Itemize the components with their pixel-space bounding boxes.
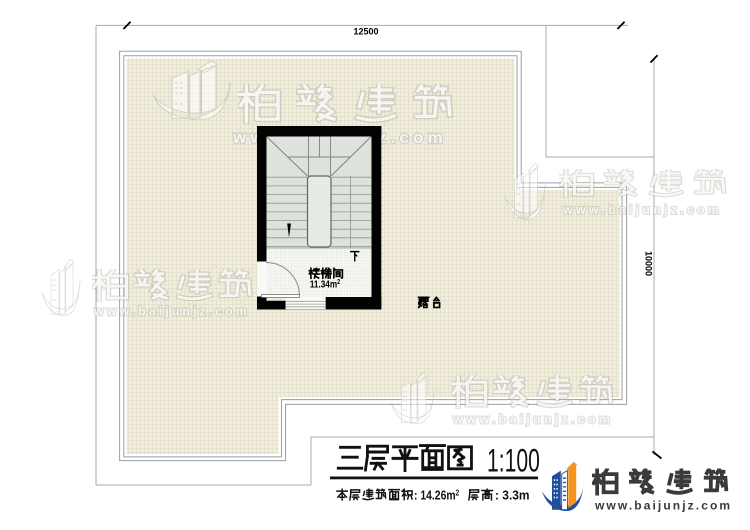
- svg-text:11.34m2: 11.34m2: [310, 278, 341, 290]
- svg-text:1:100: 1:100: [487, 442, 540, 479]
- svg-text:12500: 12500: [353, 27, 378, 37]
- svg-text:www.baijunjz.com: www.baijunjz.com: [452, 412, 613, 427]
- svg-text:www.baijunjz.com: www.baijunjz.com: [562, 203, 722, 217]
- svg-text:10000: 10000: [644, 251, 654, 276]
- svg-text:www.baijunjz.com: www.baijunjz.com: [93, 305, 250, 319]
- svg-text:: 3.3m: : 3.3m: [495, 488, 530, 503]
- svg-text:: 14.26m2: : 14.26m2: [414, 488, 459, 503]
- svg-text:www.baijunjz.com: www.baijunjz.com: [594, 499, 732, 513]
